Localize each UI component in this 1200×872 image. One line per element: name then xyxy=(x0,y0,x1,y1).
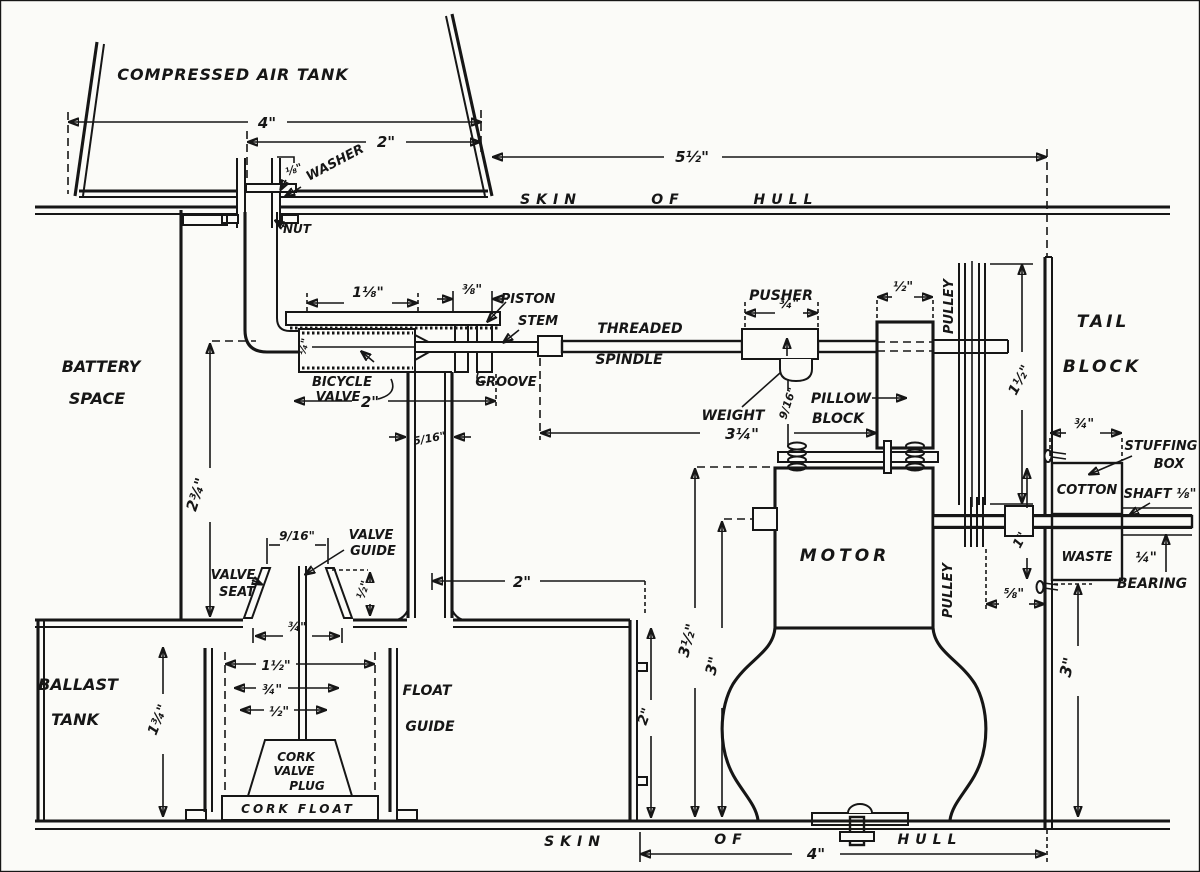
top-dimensions: 4" 2" 5½" WASHER ⅛" NUT xyxy=(68,110,1047,256)
cotton-label: COTTON xyxy=(1057,483,1118,498)
dim-pusher-width: ¾" xyxy=(779,297,799,312)
battery-space-label-2: SPACE xyxy=(69,389,125,408)
dim-valve-body: 1⅛" xyxy=(352,285,384,301)
pulley-big: PULLEY 1½" xyxy=(942,261,1034,507)
bicycle-valve: ¼" 1⅛" ⅜" PISTON STEM BICYCLE VALVE GROO… xyxy=(286,283,562,411)
dim-float-width: 1½" xyxy=(261,659,290,674)
threaded-spindle: THREADED SPINDLE xyxy=(562,321,877,368)
weight-hook xyxy=(780,359,812,381)
nut-plate-left xyxy=(222,215,238,223)
motor-bolt-head xyxy=(848,804,872,813)
valve-seat-label-2: SEAT xyxy=(219,585,256,600)
submarine-mechanism-diagram: SKIN OF HULL COMPRESSED AIR TANK 4" 2" 5… xyxy=(0,0,1200,872)
motor-spring-left xyxy=(788,443,806,471)
dim-tank-neck: 2" xyxy=(377,133,395,151)
washer-plate xyxy=(246,184,296,192)
skin-of-hull-top-skin: SKIN xyxy=(520,192,582,208)
float-guide-label-1: FLOAT xyxy=(403,683,453,699)
dim-motor-shaft-height: 3" xyxy=(701,655,723,677)
dim-motor-base: 4" xyxy=(806,845,825,863)
float-guide-left xyxy=(186,648,212,820)
cork-plug-label-2: VALVE xyxy=(273,764,315,778)
valve-tube: 5/16" 2" xyxy=(389,372,645,620)
valve-seat-label-1: VALVE xyxy=(211,568,256,583)
dim-tank-width: 4" xyxy=(257,114,276,132)
piston-stem-label-2: STEM xyxy=(518,314,558,329)
ballast-tank-label-2: TANK xyxy=(51,710,100,729)
stuffing-screw-bottom xyxy=(1037,581,1059,593)
dim-stuffing-inset: ¾" xyxy=(1074,417,1094,432)
stuffing-box-label-1: STUFFING xyxy=(1125,439,1198,454)
dim-groove-width: ⅜" xyxy=(462,283,482,298)
cork-float-label: CORK FLOAT xyxy=(241,802,355,816)
shaft-label: SHAFT ⅛" xyxy=(1124,487,1197,502)
tail-block-label-1: TAIL xyxy=(1077,312,1130,332)
stuffing-box-label-2: BOX xyxy=(1154,457,1185,472)
dim-pulley-clearance: ⅝" xyxy=(1004,587,1024,602)
dim-motor-height: 3½" xyxy=(674,622,700,659)
skin-of-hull-bottom-hull: HULL xyxy=(898,832,963,848)
dim-hull-length: 5½" xyxy=(675,148,709,166)
pulley-small-label: PULLEY xyxy=(941,561,956,618)
dim-pillow-width: ½" xyxy=(893,280,913,295)
dim-seat-mouth: 9/16" xyxy=(279,529,315,543)
pillow-block-label-1: PILLOW xyxy=(811,391,872,407)
tail-block-label-2: BLOCK xyxy=(1063,357,1141,377)
weight-label: WEIGHT xyxy=(702,408,766,424)
drive-dimensions: 1" ⅝" xyxy=(986,470,1043,609)
compressed-air-tank-label: COMPRESSED AIR TANK xyxy=(117,65,349,84)
bicycle-valve-label-2: VALVE xyxy=(316,390,361,405)
pusher: PUSHER ¾" xyxy=(742,288,818,381)
pillow-block-label-2: BLOCK xyxy=(812,411,865,427)
cork-plug-label-3: PLUG xyxy=(289,779,325,793)
valve-guide-label-1: VALVE xyxy=(349,528,394,543)
valve-guide-label-2: GUIDE xyxy=(350,544,396,559)
dim-valve-bore: ¼" xyxy=(295,337,312,357)
ballast-tank-label-1: BALLAST xyxy=(38,675,119,694)
dim-ballast-depth: 1¾" xyxy=(145,702,172,737)
dim-plug-width: ¾" xyxy=(262,683,282,698)
waste-label: WASTE xyxy=(1061,550,1112,565)
dim-stem-width: ½" xyxy=(269,705,289,720)
threaded-spindle-label-1: THREADED xyxy=(597,321,682,337)
threaded-spindle-label-2: SPINDLE xyxy=(595,352,663,368)
hull-bracket xyxy=(183,215,227,225)
nut-label: NUT xyxy=(283,222,312,236)
dim-bearing: ¼" xyxy=(1135,550,1157,566)
skin-of-hull-bottom-of: OF xyxy=(714,832,747,848)
dim-spindle-travel: 3¼" xyxy=(725,425,759,443)
hull-bottom: SKIN OF HULL 4" xyxy=(35,821,1170,863)
dim-weight-drop: 9/16" xyxy=(776,386,798,421)
dim-seat-gap: ¾" xyxy=(288,620,307,634)
tail-block: TAIL BLOCK xyxy=(1045,257,1141,828)
dim-tail-depth: 3" xyxy=(1056,655,1079,679)
dim-seat-lift: ½" xyxy=(354,579,373,601)
skin-of-hull-bottom-skin: SKIN xyxy=(544,834,606,850)
bearing-label: BEARING xyxy=(1117,576,1187,592)
motor-bolt-nut xyxy=(840,832,874,841)
dim-tube-offset: 2" xyxy=(513,573,531,591)
diagram-canvas: SKIN OF HULL COMPRESSED AIR TANK 4" 2" 5… xyxy=(0,0,1200,872)
washer-label: WASHER xyxy=(304,142,367,185)
stuffing-box: COTTON WASTE ¾" STUFFING BOX SHAFT ⅛" ¼"… xyxy=(1037,417,1198,815)
dim-valve-drop: 2¾" xyxy=(182,476,210,514)
skin-of-hull-top-of: OF xyxy=(651,192,684,208)
dim-pulley-big: 1½" xyxy=(1005,363,1034,398)
motor-mount-pin xyxy=(884,441,891,473)
dim-tube-bore: 5/16" xyxy=(412,429,446,447)
battery-space-label-1: BATTERY xyxy=(62,357,142,376)
ballast-deck xyxy=(35,620,630,627)
dim-washer-thickness: ⅛" xyxy=(284,161,305,179)
ballast-tank: BALLAST TANK 1¾" 2" FLOAT GUIDE 1½" ¾" ½… xyxy=(38,620,656,821)
piston-stem-label-1: PISTON xyxy=(501,292,556,307)
piston-stem-rod xyxy=(415,342,539,352)
motor: MOTOR xyxy=(722,441,986,845)
skin-of-hull-top-hull: HULL xyxy=(754,192,819,208)
hull-top: SKIN OF HULL xyxy=(35,192,1170,214)
pulley-big-label: PULLEY xyxy=(942,277,957,334)
stuffing-screw-top xyxy=(1045,450,1067,462)
spindle-end-block xyxy=(538,336,562,356)
motor-shaft-stub xyxy=(753,508,777,530)
motor-label: MOTOR xyxy=(800,546,891,566)
motor-bolt-plate xyxy=(812,813,908,825)
bicycle-valve-label-1: BICYCLE xyxy=(312,375,372,390)
cork-plug-label-1: CORK xyxy=(277,750,316,764)
dim-valve-base: 2" xyxy=(361,393,379,411)
float-guide-label-2: GUIDE xyxy=(405,719,455,735)
